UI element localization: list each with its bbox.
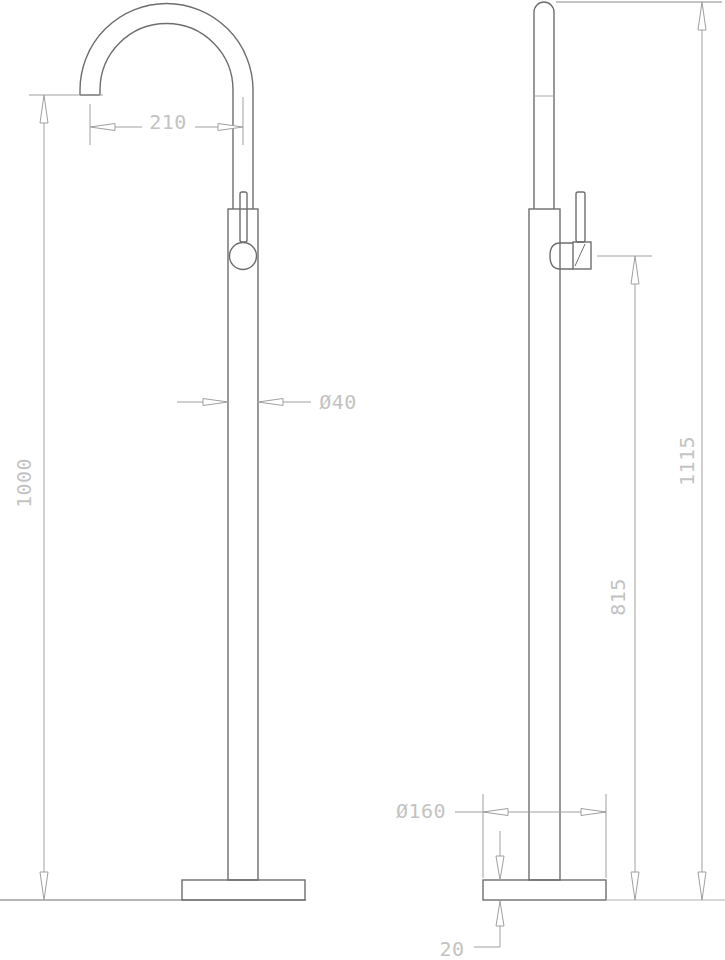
column-side [529,209,560,880]
linework-layer [0,0,725,960]
dim-label-spout-reach: 210 [149,112,187,132]
dim-815-arrow-up [631,256,639,284]
base-plate-front [182,880,305,900]
handle-lever-side [576,192,585,242]
dim-1115-arrow-up [698,2,706,30]
dim-1000-arrow-up [40,95,48,123]
base-plate-side [483,880,606,900]
dim-20-arrow-up [496,901,504,926]
dim-label-spout-height: 1000 [14,458,34,508]
dim-160-arrow-left [483,809,508,816]
column-front [228,209,258,880]
dim-20-arrow-down [496,856,504,880]
dim-label-handle-height: 815 [608,578,628,616]
pipe-side [534,2,554,209]
dim-210-arrow-left [90,124,115,131]
drawing-canvas: 210 Ø40 1000 1115 815 Ø160 20 [0,0,725,960]
dim-label-base-diameter: Ø160 [396,801,446,821]
dim-1115-arrow-down [698,872,706,900]
dim-label-column-diameter: Ø40 [319,392,357,412]
dim-label-base-thickness: 20 [439,939,464,959]
handle-lever-front [240,192,247,242]
handle-hub-rounded [550,243,573,269]
handle-hub-diagonal [575,244,585,266]
dim-40-arrow-left [203,399,228,406]
front-view-drawing [0,3,306,900]
front-view-dimensions [29,95,311,900]
dim-label-total-height: 1115 [677,436,697,486]
dim-815-arrow-down [631,872,639,900]
dim-160-arrow-right [581,809,606,816]
dim-40-arrow-right [258,399,283,406]
dim-210-arrow-right [218,124,243,131]
handle-hub-circle [230,243,257,270]
dim-1000-arrow-down [40,872,48,900]
spout-outline [80,3,253,209]
